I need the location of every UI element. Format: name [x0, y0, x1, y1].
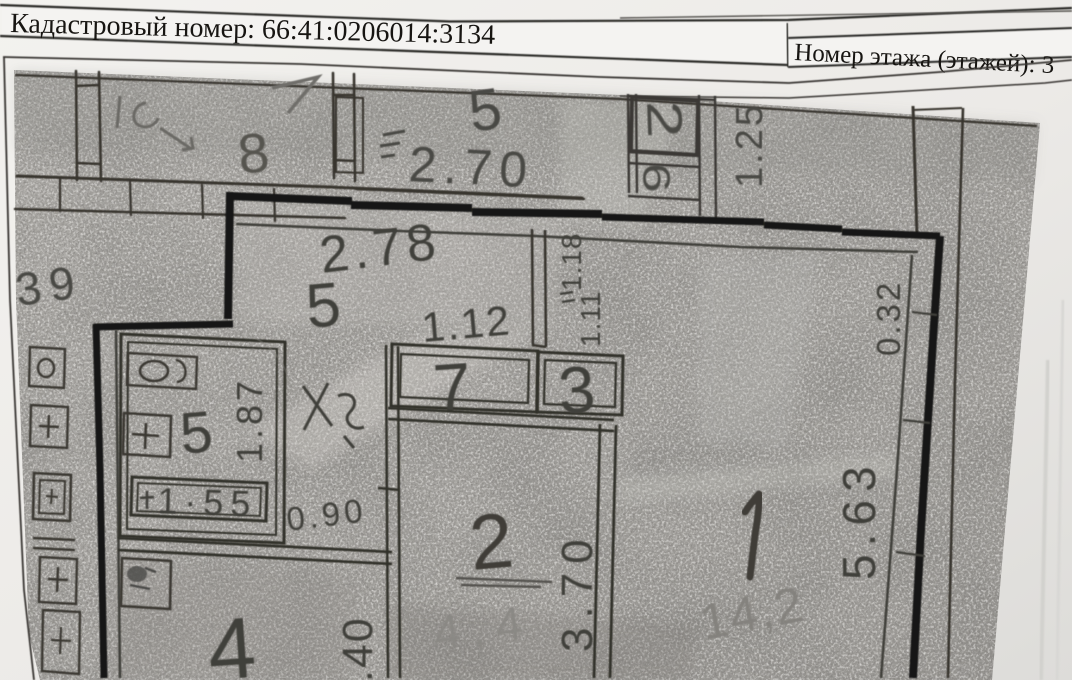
svg-text:5: 5: [303, 270, 343, 342]
svg-text:3.70: 3.70: [553, 530, 602, 652]
svg-text:39: 39: [12, 255, 86, 316]
svg-text:1.11: 1.11: [575, 291, 606, 347]
svg-text:0.32: 0.32: [870, 280, 907, 356]
svg-text:8: 8: [235, 120, 273, 186]
svg-text:2.70: 2.70: [407, 136, 535, 198]
svg-text:1.18: 1.18: [556, 233, 587, 292]
svg-text:2: 2: [466, 495, 517, 586]
svg-text:7: 7: [431, 349, 474, 427]
svg-text:1·55: 1·55: [157, 480, 258, 524]
svg-text:5.63: 5.63: [833, 458, 885, 580]
svg-text:1.12: 1.12: [420, 296, 514, 351]
svg-text:1.87: 1.87: [229, 377, 270, 463]
svg-text:1.40: 1.40: [334, 616, 382, 680]
svg-text:5: 5: [177, 399, 215, 467]
svg-text:2: 2: [636, 99, 693, 139]
svg-text:1.25: 1.25: [729, 102, 771, 188]
svg-text:6: 6: [635, 162, 678, 193]
svg-text:4: 4: [205, 600, 259, 680]
